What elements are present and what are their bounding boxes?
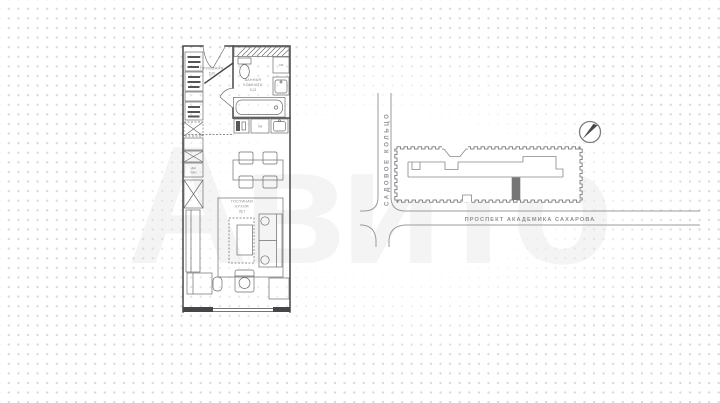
kitchen-counter (186, 210, 200, 272)
dishwasher-small-label: ДШ (191, 166, 196, 170)
bathtub (234, 98, 286, 118)
wardrobe (185, 52, 203, 120)
sofa (259, 214, 282, 267)
apartment-location-marker (512, 178, 521, 201)
living-label-1: ГОСТИНАЯ (231, 200, 253, 204)
chair (239, 152, 253, 164)
hallway-area: 6,20 (209, 72, 215, 76)
armchair (235, 270, 254, 292)
street-label-vertical: САДОВОЕ КОЛЬЦО (385, 112, 391, 206)
chair (263, 176, 277, 188)
living-label-2: КУХНЯ (235, 204, 249, 208)
bathroom-area: 5,13 (250, 88, 256, 92)
dining-table (233, 160, 283, 180)
living-area-outline (218, 198, 283, 277)
road-vertical-left-line (360, 93, 378, 211)
bathroom-label-2: КОМНАТА (243, 83, 262, 87)
cabinet (269, 278, 289, 299)
listing-plan-image: Авито (0, 0, 720, 403)
bathroom-label-1: ВАННАЯ (245, 78, 262, 82)
building-outline (395, 147, 582, 202)
road-horizontal-bottom-line (389, 225, 700, 247)
microwave-label: СВЧ (191, 171, 197, 175)
kitchen-cabinets: ДШ СВЧ (184, 122, 203, 272)
location-map: САДОВОЕ КОЛЬЦО ПРОСПЕКТ АКАДЕМИКА САХАРО… (360, 85, 700, 250)
chair (239, 176, 253, 188)
compass-icon (580, 122, 601, 143)
bathroom-sink (273, 77, 289, 95)
dishwasher: ПМ (251, 119, 269, 133)
desk-chair (213, 277, 222, 291)
dishwasher-label: ПМ (258, 125, 263, 129)
kitchen-sink (271, 119, 288, 133)
washing-machine-label: СМ (279, 63, 284, 67)
entry-door (203, 47, 225, 68)
building-footprint (395, 145, 582, 203)
washing-machine: СМ (273, 57, 289, 73)
dining-set (233, 152, 283, 188)
window (213, 309, 273, 312)
floor-plan: ДШ СВЧ СМ (175, 40, 300, 320)
toilet (238, 58, 251, 79)
hob (234, 119, 249, 133)
desk-and-chair (187, 273, 222, 294)
road-continuation (360, 225, 376, 247)
living-area-value: 28,7 (239, 209, 245, 213)
chair (263, 152, 277, 164)
street-label-horizontal: ПРОСПЕКТ АКАДЕМИКА САХАРОВА (465, 217, 596, 223)
coffee-table (229, 218, 254, 263)
bathroom-door (220, 88, 233, 108)
hallway-label: ПРИХОЖАЯ (200, 67, 223, 71)
